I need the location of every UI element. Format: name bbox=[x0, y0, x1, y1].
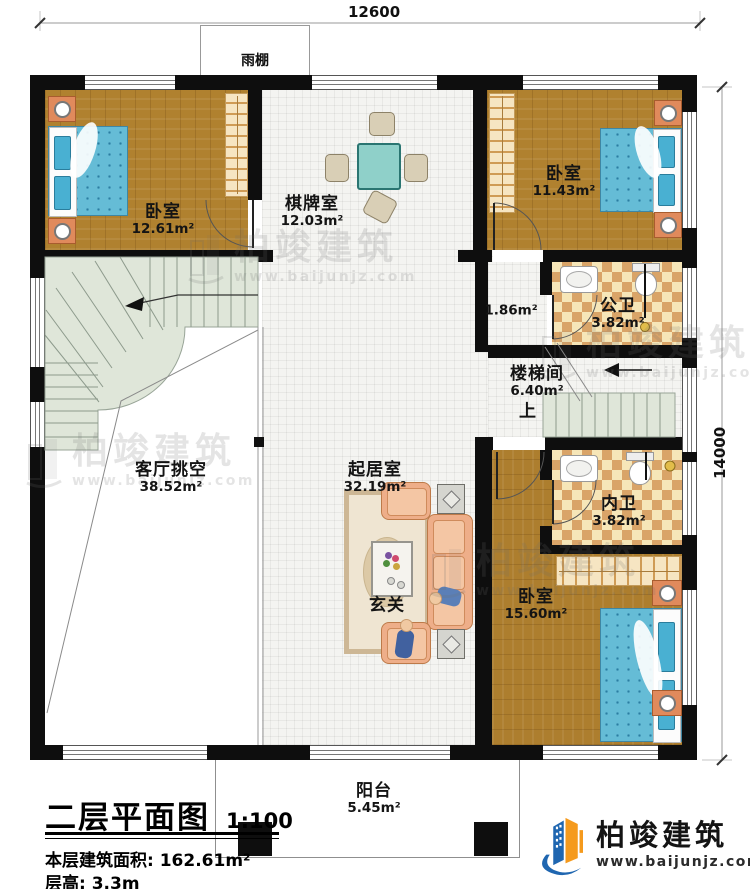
nightstand-tl-2 bbox=[48, 218, 76, 244]
floor-area-text: 本层建筑面积: 162.61m² bbox=[45, 846, 250, 871]
watermark-1: 柏竣建筑www.baijunjz.com bbox=[186, 230, 417, 285]
window-bottom-2 bbox=[310, 745, 450, 760]
label-hallway: 1.86m² bbox=[484, 303, 537, 318]
window-right-4 bbox=[682, 462, 697, 535]
label-stairwell: 楼梯间6.40m² bbox=[510, 365, 564, 399]
bed-tr bbox=[600, 128, 682, 212]
plan-scale: 1:100 bbox=[226, 809, 293, 833]
floor-plan-canvas: 雨棚 bbox=[0, 0, 750, 889]
title-underline-thin bbox=[45, 838, 279, 839]
wall-innerbath-left-a bbox=[540, 450, 552, 480]
person-lying-head bbox=[400, 619, 413, 632]
end-table-bottom bbox=[437, 629, 465, 659]
window-bottom-3 bbox=[543, 745, 658, 760]
watermark-logo-icon bbox=[186, 232, 226, 284]
brand-url: www.baijunjz.com bbox=[596, 854, 750, 870]
label-public-bath: 公卫3.82m² bbox=[591, 297, 644, 331]
window-top-2 bbox=[312, 75, 437, 90]
watermark-logo-icon bbox=[24, 436, 64, 488]
label-bedroom-br: 卧室15.60m² bbox=[505, 588, 568, 622]
floor-height-text: 层高: 3.3m bbox=[45, 869, 140, 889]
plan-title: 二层平面图 bbox=[45, 792, 210, 837]
brand-logo: 柏竣建筑 www.baijunjz.com bbox=[534, 812, 750, 878]
rain-canopy-label: 雨棚 bbox=[241, 50, 269, 70]
closet-bedroom-tl bbox=[225, 93, 248, 197]
label-chess-room: 棋牌室12.03m² bbox=[281, 195, 344, 229]
brand-name: 柏竣建筑 bbox=[596, 820, 750, 852]
coffee-table bbox=[371, 541, 413, 597]
rain-canopy: 雨棚 bbox=[200, 25, 310, 77]
wall-bedtl-chess bbox=[248, 90, 262, 200]
window-bottom-1 bbox=[63, 745, 207, 760]
toilet-bowl-public bbox=[635, 272, 657, 296]
watermark-2: 柏竣建筑www.baijunjz.com bbox=[538, 326, 750, 381]
toilet-tank-inner bbox=[626, 452, 654, 461]
window-right-5 bbox=[682, 590, 697, 705]
end-table-top bbox=[437, 484, 465, 514]
cup-2 bbox=[397, 581, 405, 589]
nightstand-br-2 bbox=[652, 690, 682, 716]
toilet-tank-public bbox=[632, 263, 660, 272]
chess-chair-right bbox=[404, 154, 428, 182]
label-stairs-up: 上 bbox=[519, 402, 537, 421]
chess-table bbox=[357, 143, 401, 190]
nightstand-tr-2 bbox=[654, 212, 682, 238]
window-left-1 bbox=[30, 278, 45, 367]
floor-living-void bbox=[45, 262, 258, 745]
dimension-top-label: 12600 bbox=[348, 3, 400, 21]
cup-1 bbox=[387, 577, 395, 585]
label-balcony: 阳台5.45m² bbox=[347, 782, 400, 816]
toilet-bowl-inner bbox=[629, 461, 651, 485]
wall-below-stairwell-b bbox=[545, 437, 697, 450]
label-living-void: 客厅挑空38.52m² bbox=[135, 461, 207, 495]
nightstand-tl-1 bbox=[48, 96, 76, 122]
chess-chair-top bbox=[369, 112, 395, 136]
label-foyer: 玄关 bbox=[369, 596, 405, 615]
label-bedroom-tl: 卧室12.61m² bbox=[132, 203, 195, 237]
label-living-room: 起居室32.19m² bbox=[344, 461, 407, 495]
brand-logo-icon bbox=[534, 812, 590, 878]
window-right-1 bbox=[682, 112, 697, 228]
wall-publicbath-left bbox=[540, 262, 552, 295]
bed-tl bbox=[48, 126, 128, 216]
wall-below-bedtr-a bbox=[458, 250, 492, 262]
watermark-logo-icon bbox=[428, 546, 468, 598]
bed-br bbox=[600, 608, 682, 742]
label-bedroom-tr: 卧室11.43m² bbox=[533, 165, 596, 199]
plan-title-row: 二层平面图 1:100 bbox=[45, 792, 293, 837]
brand-text-block: 柏竣建筑 www.baijunjz.com bbox=[596, 820, 750, 870]
label-inner-bath: 内卫3.82m² bbox=[592, 495, 645, 529]
wall-below-bedtr-b bbox=[543, 250, 697, 262]
window-top-1 bbox=[85, 75, 175, 90]
title-underline-thick bbox=[45, 832, 279, 835]
flower-decor bbox=[385, 552, 392, 559]
dimension-right-label: 14000 bbox=[711, 439, 729, 479]
wall-chess-bedtr bbox=[473, 90, 487, 250]
chess-chair-left bbox=[325, 154, 349, 182]
sink-public-bath bbox=[560, 266, 598, 293]
nightstand-tr-1 bbox=[654, 100, 682, 126]
closet-bedroom-tr bbox=[489, 93, 515, 213]
window-top-3 bbox=[523, 75, 658, 90]
sink-inner-bath bbox=[560, 455, 598, 482]
balcony-column-right bbox=[474, 822, 508, 856]
